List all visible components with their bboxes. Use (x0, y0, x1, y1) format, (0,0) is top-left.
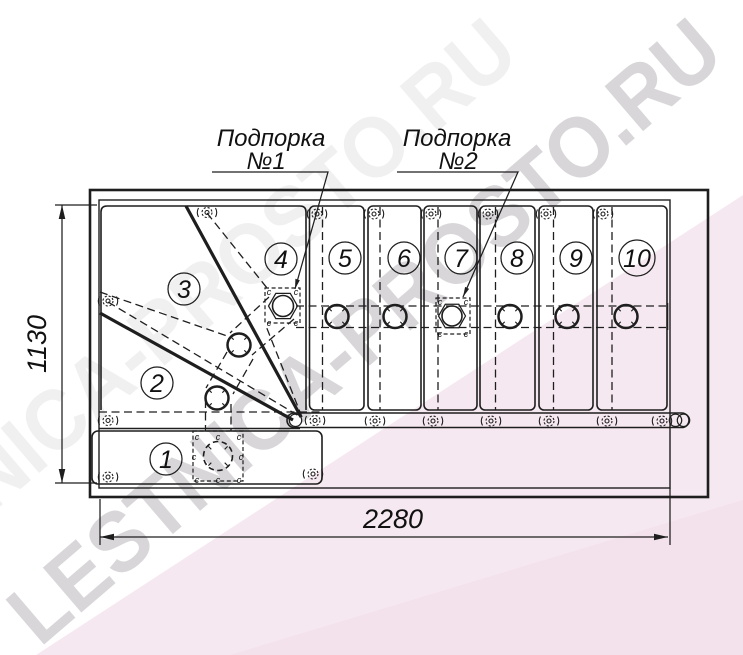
weld-mark: c (216, 475, 221, 485)
weld-mark: c (464, 297, 469, 307)
svg-text:1: 1 (159, 446, 173, 474)
staircase-plan-drawing: LESTNICA-PROSTO.RU LESTNICA-PROSTO.RU (0, 0, 743, 655)
weld-mark: c (195, 432, 200, 442)
svg-text:3: 3 (177, 276, 191, 304)
weld-mark: c (267, 318, 272, 328)
svg-text:5: 5 (338, 245, 352, 273)
bolt-icon (98, 472, 117, 482)
support-post-1: c c c c (265, 287, 300, 328)
weld-mark: c (267, 287, 272, 297)
svg-text:6: 6 (397, 245, 411, 273)
step-number-9: 9 (560, 242, 592, 274)
weld-mark: c (438, 297, 443, 307)
staircase-plan-page: LESTNICA-PROSTO.RU LESTNICA-PROSTO.RU (0, 0, 743, 655)
bolt-icon (365, 416, 384, 426)
weld-mark: c (464, 329, 469, 339)
weld-mark: c (195, 475, 200, 485)
step-number-5: 5 (329, 242, 361, 274)
baluster-post (499, 305, 522, 328)
svg-text:№1: №1 (246, 148, 285, 175)
svg-text:9: 9 (569, 245, 583, 273)
svg-text:2: 2 (149, 370, 164, 398)
weld-mark: c (192, 452, 197, 462)
weld-mark: c (237, 432, 242, 442)
bolt-icon (197, 208, 216, 218)
svg-text:1130: 1130 (22, 315, 52, 373)
weld-mark: c (239, 452, 244, 462)
weld-mark: c (237, 475, 242, 485)
step-number-10: 10 (619, 240, 655, 276)
svg-text:№2: №2 (438, 148, 477, 175)
weld-mark: c (216, 432, 221, 442)
svg-text:10: 10 (623, 245, 651, 273)
weld-mark: c (438, 329, 443, 339)
weld-mark: c (294, 318, 299, 328)
svg-text:7: 7 (454, 245, 469, 273)
svg-text:2280: 2280 (362, 504, 423, 534)
svg-text:8: 8 (510, 245, 524, 273)
svg-text:4: 4 (274, 246, 288, 274)
newel-post-a (228, 334, 251, 357)
